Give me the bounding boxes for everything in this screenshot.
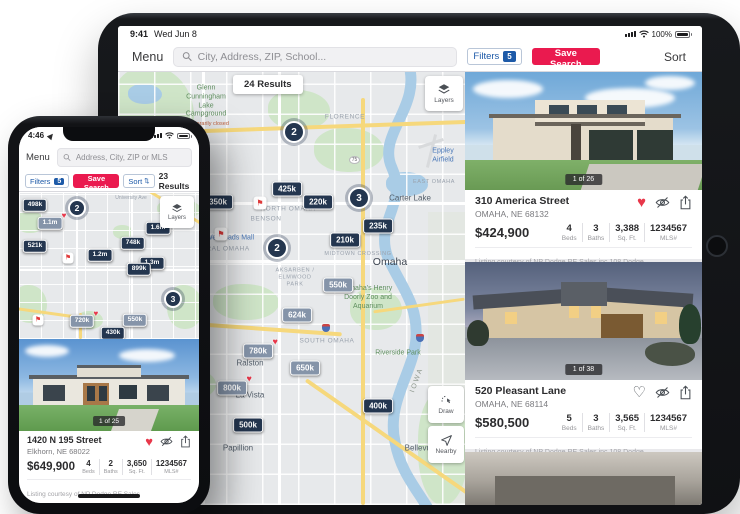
price-marker[interactable]: 550k <box>323 278 353 293</box>
iphone-filter-bar: Filters 5 Save Search Sort ⇅ 23 Results <box>19 171 199 192</box>
cluster-marker[interactable]: 3 <box>164 290 182 308</box>
photo-count-badge: 1 of 26 <box>565 174 602 185</box>
signal-icon <box>625 31 636 37</box>
price-marker[interactable]: 210k <box>330 233 360 248</box>
sort-button[interactable]: Sort ⇅ <box>123 174 154 188</box>
map-label: University Ave <box>115 195 147 201</box>
iphone-notch <box>63 127 155 141</box>
stat-mls: 1234567MLS# <box>644 223 692 242</box>
price-marker[interactable]: 650k <box>290 361 320 376</box>
nearby-label: Nearby <box>436 448 457 455</box>
layers-icon <box>437 83 451 96</box>
filters-button[interactable]: Filters 5 <box>467 48 521 65</box>
hide-listing-button[interactable] <box>655 386 670 399</box>
cluster-marker[interactable]: 2 <box>68 199 86 217</box>
price-marker[interactable]: 1.2m <box>88 249 113 262</box>
map-label: Glenn Cunningham Lake Campground <box>178 85 234 120</box>
listing-price: $580,500 <box>475 415 529 430</box>
map-label: EAST OMAHA <box>413 179 455 185</box>
listing-card[interactable]: 1 of 38 520 Pleasant Lane OMAHA, NE 6811… <box>465 262 702 449</box>
iphone-nav-bar: Menu <box>19 144 199 171</box>
iphone-clock: 4:46 <box>28 131 44 140</box>
price-marker[interactable]: 400k <box>363 399 393 414</box>
map-label: SOUTH OMAHA <box>300 338 355 345</box>
wifi-icon <box>639 30 649 38</box>
listing-card[interactable]: 1 of 26 310 America Street OMAHA, NE 681… <box>465 72 702 259</box>
stat-sqft: 3,650Sq. Ft. <box>122 459 151 475</box>
filters-count-badge: 5 <box>54 178 64 185</box>
stat-sqft: 3,388Sq. Ft. <box>609 223 644 242</box>
map-label: AKSARBEN / ELMWOOD PARK <box>272 268 318 289</box>
stat-beds: 5Beds <box>557 413 582 432</box>
save-search-button[interactable]: Save Search <box>73 174 119 188</box>
cluster-marker[interactable]: 3 <box>348 187 370 209</box>
favorite-button[interactable]: ♥ <box>637 195 646 210</box>
price-marker[interactable]: 500k <box>233 418 263 433</box>
share-button[interactable] <box>679 385 692 400</box>
price-marker[interactable]: 498k <box>23 199 47 212</box>
map-label: Eppley Airfield <box>426 147 460 165</box>
photo-count-badge: 1 of 25 <box>93 416 125 426</box>
filters-label: Filters <box>30 177 50 186</box>
draw-button[interactable]: Draw <box>428 386 464 423</box>
filters-label: Filters <box>473 51 499 62</box>
flag-marker[interactable]: ⚑ <box>254 197 267 210</box>
menu-button[interactable]: Menu <box>132 50 163 64</box>
battery-icon <box>177 133 190 139</box>
search-input[interactable] <box>76 153 186 162</box>
listing-city: Elkhorn, NE 68022 <box>27 447 102 456</box>
wifi-icon <box>165 132 174 139</box>
layers-button[interactable]: Layers <box>160 196 194 228</box>
price-marker-favorited[interactable]: 1.1m♥ <box>38 217 63 230</box>
stat-baths: 3Baths <box>582 223 610 242</box>
layers-label: Layers <box>434 97 454 104</box>
map-label: BENSON <box>250 216 281 223</box>
interstate-shield-icon <box>322 324 330 332</box>
home-indicator[interactable] <box>78 494 140 498</box>
location-arrow-icon <box>47 131 55 139</box>
interstate-shield-icon <box>416 334 424 342</box>
stat-sqft: 3,565Sq. Ft. <box>609 413 644 432</box>
filters-button[interactable]: Filters 5 <box>25 174 69 188</box>
iphone-map[interactable]: University Ave Layers 2 3 ⚑ ⚑ 498k 1.1m♥… <box>19 193 199 339</box>
iphone-device-frame: 4:46 Menu Filters 5 <box>8 116 210 514</box>
price-marker[interactable]: 899k <box>127 263 151 276</box>
listing-photo[interactable] <box>465 452 702 505</box>
map-label: Omaha <box>373 256 407 268</box>
ipad-clock: 9:41 <box>130 29 148 39</box>
map-label: Westroads Mall <box>206 235 254 242</box>
listing-price: $424,900 <box>475 225 529 240</box>
search-icon <box>182 51 192 62</box>
ipad-nav-bar: Menu Filters 5 Save Search Sort <box>118 42 702 72</box>
photo-count-badge: 1 of 38 <box>565 364 602 375</box>
listing-address: 310 America Street <box>475 195 569 207</box>
filters-count-badge: 5 <box>503 51 515 62</box>
battery-percent: 100% <box>652 30 672 39</box>
draw-label: Draw <box>438 408 453 415</box>
map-road <box>19 269 199 271</box>
listing-panel: 1 of 26 310 America Street OMAHA, NE 681… <box>465 72 702 505</box>
favorite-heart-icon: ♥ <box>247 375 252 384</box>
listing-card[interactable] <box>465 452 702 505</box>
flag-marker[interactable]: ⚑ <box>33 315 44 326</box>
price-marker[interactable]: 425k <box>272 182 302 197</box>
stat-baths: 3Baths <box>582 413 610 432</box>
map-label: Papillion <box>223 444 253 453</box>
stat-mls: 1234567MLS# <box>151 459 191 475</box>
favorite-button[interactable]: ♡ <box>633 385 646 400</box>
layers-label: Layers <box>168 215 186 221</box>
listing-photo[interactable]: 1 of 26 <box>465 72 702 190</box>
map-label: Carter Lake <box>389 194 431 203</box>
price-marker-favorited[interactable]: 780k♥ <box>243 344 273 359</box>
sort-arrows-icon: ⇅ <box>144 177 149 185</box>
results-count: 23 Results <box>159 171 193 191</box>
price-marker[interactable]: 430k <box>101 327 125 339</box>
results-count: 24 Results <box>233 75 303 94</box>
favorite-heart-icon: ♥ <box>93 310 98 318</box>
sort-button[interactable]: Sort <box>664 50 686 64</box>
listing-photo[interactable]: 1 of 25 <box>19 339 199 431</box>
listing-city: OMAHA, NE 68114 <box>475 399 566 409</box>
nearby-arrow-icon <box>440 434 453 447</box>
stat-beds: 4Beds <box>78 459 99 475</box>
map-road <box>278 72 281 505</box>
menu-button[interactable]: Menu <box>26 152 50 163</box>
hide-listing-button[interactable] <box>655 196 670 209</box>
sort-label: Sort <box>128 177 142 186</box>
listing-address: 520 Pleasant Lane <box>475 385 566 397</box>
map-label: Ralston <box>236 359 263 368</box>
stat-mls: 1234567MLS# <box>644 413 692 432</box>
listing-city: OMAHA, NE 68132 <box>475 209 569 219</box>
search-icon <box>63 153 71 162</box>
battery-icon <box>675 31 690 38</box>
stat-baths: 2Baths <box>99 459 122 475</box>
price-marker[interactable]: 624k <box>282 308 312 323</box>
cluster-marker[interactable]: 2 <box>283 121 305 143</box>
listing-card[interactable]: 1 of 25 1420 N 195 Street Elkhorn, NE 68… <box>19 339 199 503</box>
map-label: Riverside Park <box>375 350 421 357</box>
nearby-button[interactable]: Nearby <box>428 426 464 463</box>
ipad-home-button[interactable] <box>706 235 728 257</box>
listing-price: $649,900 <box>27 461 75 473</box>
price-marker[interactable]: 748k <box>121 237 145 250</box>
draw-hand-icon <box>440 394 453 407</box>
ipad-status-bar: 9:41 Wed Jun 8 100% <box>118 26 702 42</box>
layers-icon <box>171 203 183 214</box>
hide-listing-button[interactable] <box>160 436 173 447</box>
listing-address: 1420 N 195 Street <box>27 435 102 445</box>
layers-button[interactable]: Layers <box>425 76 463 111</box>
save-search-button[interactable]: Save Search <box>532 48 600 65</box>
search-field[interactable] <box>173 47 457 67</box>
share-button[interactable] <box>180 435 191 448</box>
map-label: FLORENCE <box>325 114 365 121</box>
stat-beds: 4Beds <box>557 223 582 242</box>
iphone-screen: 4:46 Menu Filters 5 <box>19 127 199 503</box>
flag-marker[interactable]: ⚑ <box>63 253 74 264</box>
listing-photo[interactable]: 1 of 38 <box>465 262 702 380</box>
price-marker[interactable]: 235k <box>363 219 393 234</box>
search-field[interactable] <box>57 148 192 167</box>
favorite-button[interactable]: ♥ <box>145 435 153 448</box>
favorite-heart-icon: ♥ <box>62 212 67 220</box>
price-marker-favorited[interactable]: 800k♥ <box>217 381 247 396</box>
price-marker[interactable]: 521k <box>23 240 47 253</box>
stage: 9:41 Wed Jun 8 100% Menu Filters <box>0 0 740 514</box>
price-marker[interactable]: 550k <box>123 314 147 327</box>
route-shield-75: 75 <box>349 156 360 164</box>
share-button[interactable] <box>679 195 692 210</box>
cluster-marker[interactable]: 2 <box>266 237 288 259</box>
flag-marker[interactable]: ⚑ <box>215 228 228 241</box>
search-input[interactable] <box>198 51 449 63</box>
favorite-heart-icon: ♥ <box>273 338 278 347</box>
price-marker-favorited[interactable]: 720k♥ <box>70 315 94 328</box>
ipad-date: Wed Jun 8 <box>154 29 197 39</box>
price-marker[interactable]: 220k <box>303 195 333 210</box>
